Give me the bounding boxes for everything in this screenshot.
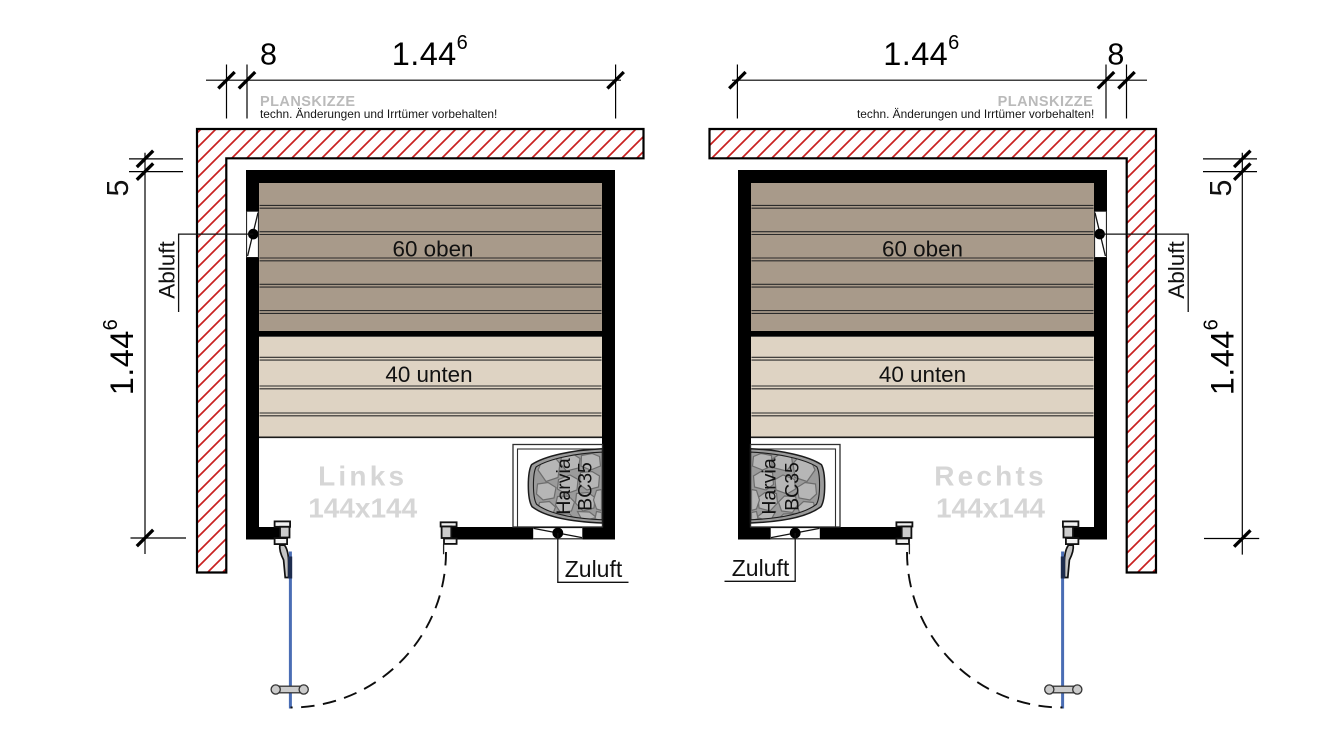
svg-text:8: 8 (260, 37, 277, 71)
svg-text:Links: Links (318, 461, 407, 492)
svg-text:techn. Änderungen und Irrtümer: techn. Änderungen und Irrtümer vorbehalt… (260, 107, 497, 121)
svg-text:Harvia: Harvia (553, 458, 575, 515)
svg-text:8: 8 (1107, 37, 1124, 71)
svg-text:144x144: 144x144 (308, 493, 417, 524)
svg-text:Abluft: Abluft (155, 240, 180, 298)
svg-text:Abluft: Abluft (1164, 240, 1189, 298)
svg-text:60 oben: 60 oben (393, 237, 474, 262)
svg-text:Zuluft: Zuluft (732, 555, 790, 581)
svg-text:5: 5 (1204, 180, 1238, 197)
svg-text:Zuluft: Zuluft (565, 556, 623, 582)
svg-text:144x144: 144x144 (936, 493, 1045, 524)
svg-text:Harvia: Harvia (758, 458, 780, 515)
svg-text:40 unten: 40 unten (385, 362, 472, 387)
svg-text:Rechts: Rechts (934, 461, 1047, 492)
svg-text:techn. Änderungen und Irrtümer: techn. Änderungen und Irrtümer vorbehalt… (857, 107, 1094, 121)
svg-text:BC35: BC35 (575, 462, 597, 511)
svg-text:40 unten: 40 unten (879, 362, 966, 387)
svg-text:60 oben: 60 oben (882, 237, 963, 262)
svg-text:5: 5 (101, 180, 135, 197)
svg-text:BC35: BC35 (781, 462, 803, 511)
